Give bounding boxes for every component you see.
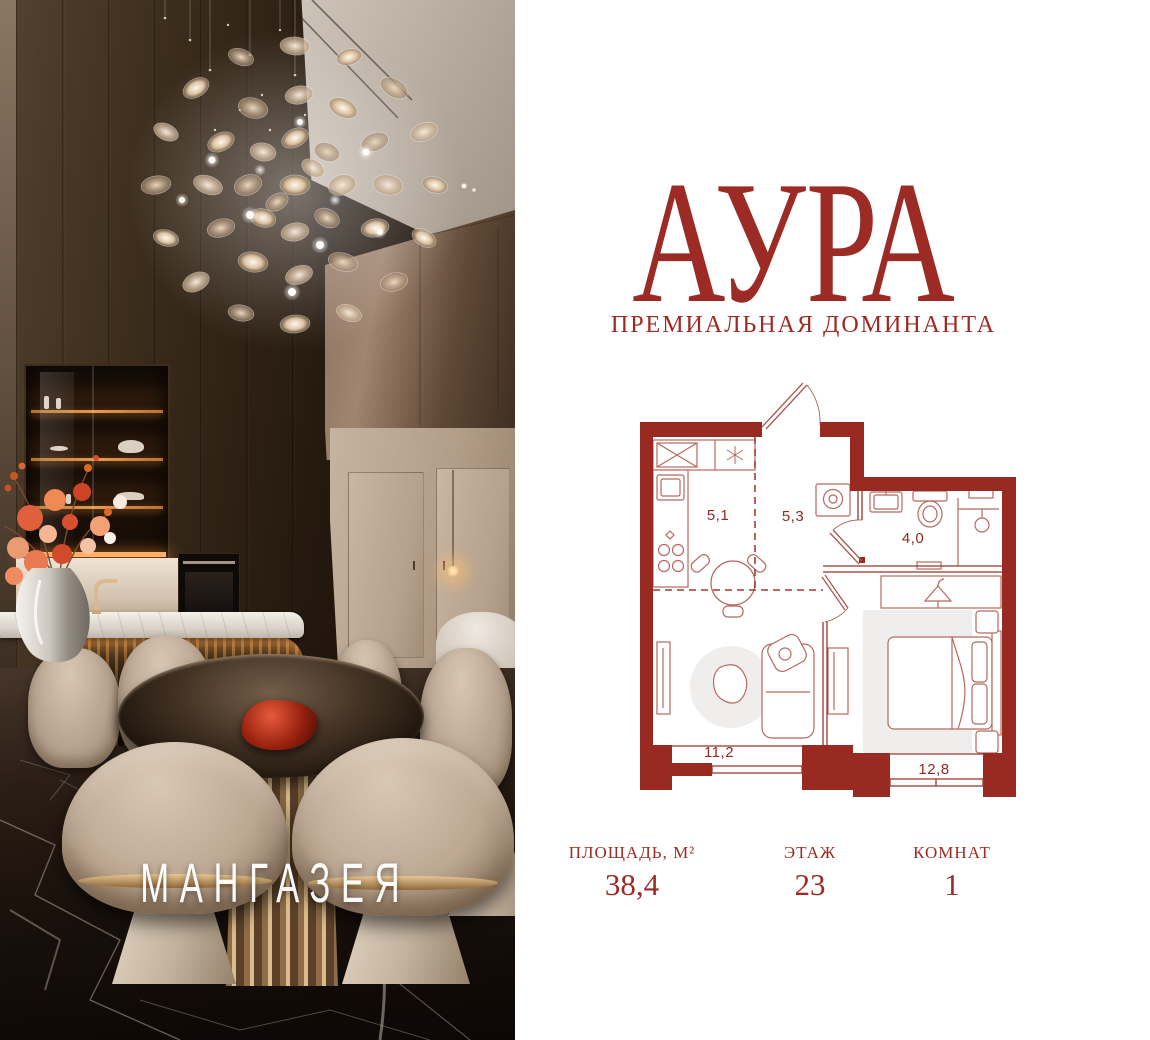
kitchen-area-label: 5,1 [707, 507, 729, 524]
apartment-flyer: МАНГАЗЕЯ АУРА ПРЕМИАЛЬНАЯ ДОМИНАНТА [0, 0, 1150, 1040]
developer-watermark: МАНГАЗЕЯ [105, 850, 435, 915]
spec-label: КОМНАТ [867, 842, 1037, 863]
vase [16, 568, 90, 663]
bathroom-area-label: 4,0 [902, 530, 924, 547]
interior-photo: МАНГАЗЕЯ [0, 0, 515, 1040]
flyer-content: АУРА ПРЕМИАЛЬНАЯ ДОМИНАНТА [515, 0, 1150, 1040]
project-tagline: ПРЕМИАЛЬНАЯ ДОМИНАНТА [484, 313, 1121, 337]
flowers-illustration [0, 430, 230, 690]
project-logo: АУРА [559, 155, 1029, 330]
living-area-label: 11,2 [704, 744, 734, 761]
bedroom-area-label: 12,8 [918, 761, 949, 778]
background-door [348, 472, 424, 658]
spec-total-area: ПЛОЩАДЬ, М² 38,4 [547, 842, 717, 900]
door-handle [443, 561, 445, 570]
spec-rooms: КОМНАТ 1 [867, 842, 1037, 900]
hallway-area-label: 5,3 [782, 508, 804, 525]
pendant-cable [452, 470, 454, 570]
pendant-light [446, 564, 460, 578]
spec-value: 1 [867, 869, 1037, 900]
spec-label: ПЛОЩАДЬ, М² [547, 842, 717, 863]
kitchen-tap [96, 581, 117, 612]
spec-value: 38,4 [547, 869, 717, 900]
door-handle [413, 561, 415, 570]
floor-plan: 5,1 5,3 4,0 11,2 12,8 [620, 380, 1070, 810]
chandelier-illustration [0, 0, 515, 430]
